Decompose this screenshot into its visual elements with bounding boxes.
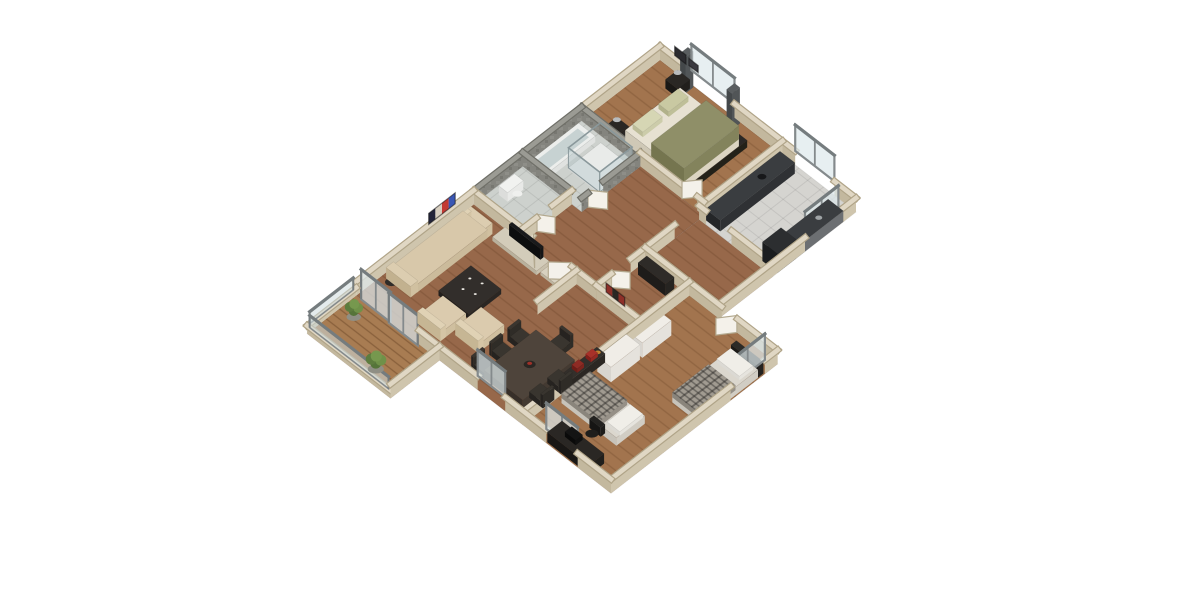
table-dot [468,278,471,280]
office-chair [585,430,598,438]
table-lamp [613,117,621,122]
table-dot [474,293,477,295]
kitchen-sink [815,216,822,220]
table-lamp [674,70,682,75]
toilet-bowl [512,191,522,197]
floorplan-page [0,0,1200,600]
cooktop [757,174,766,180]
table-dot [462,288,465,290]
centerpiece-fruit [527,362,532,365]
table-dot [481,282,484,284]
floorplan-3d-render [0,0,1200,600]
